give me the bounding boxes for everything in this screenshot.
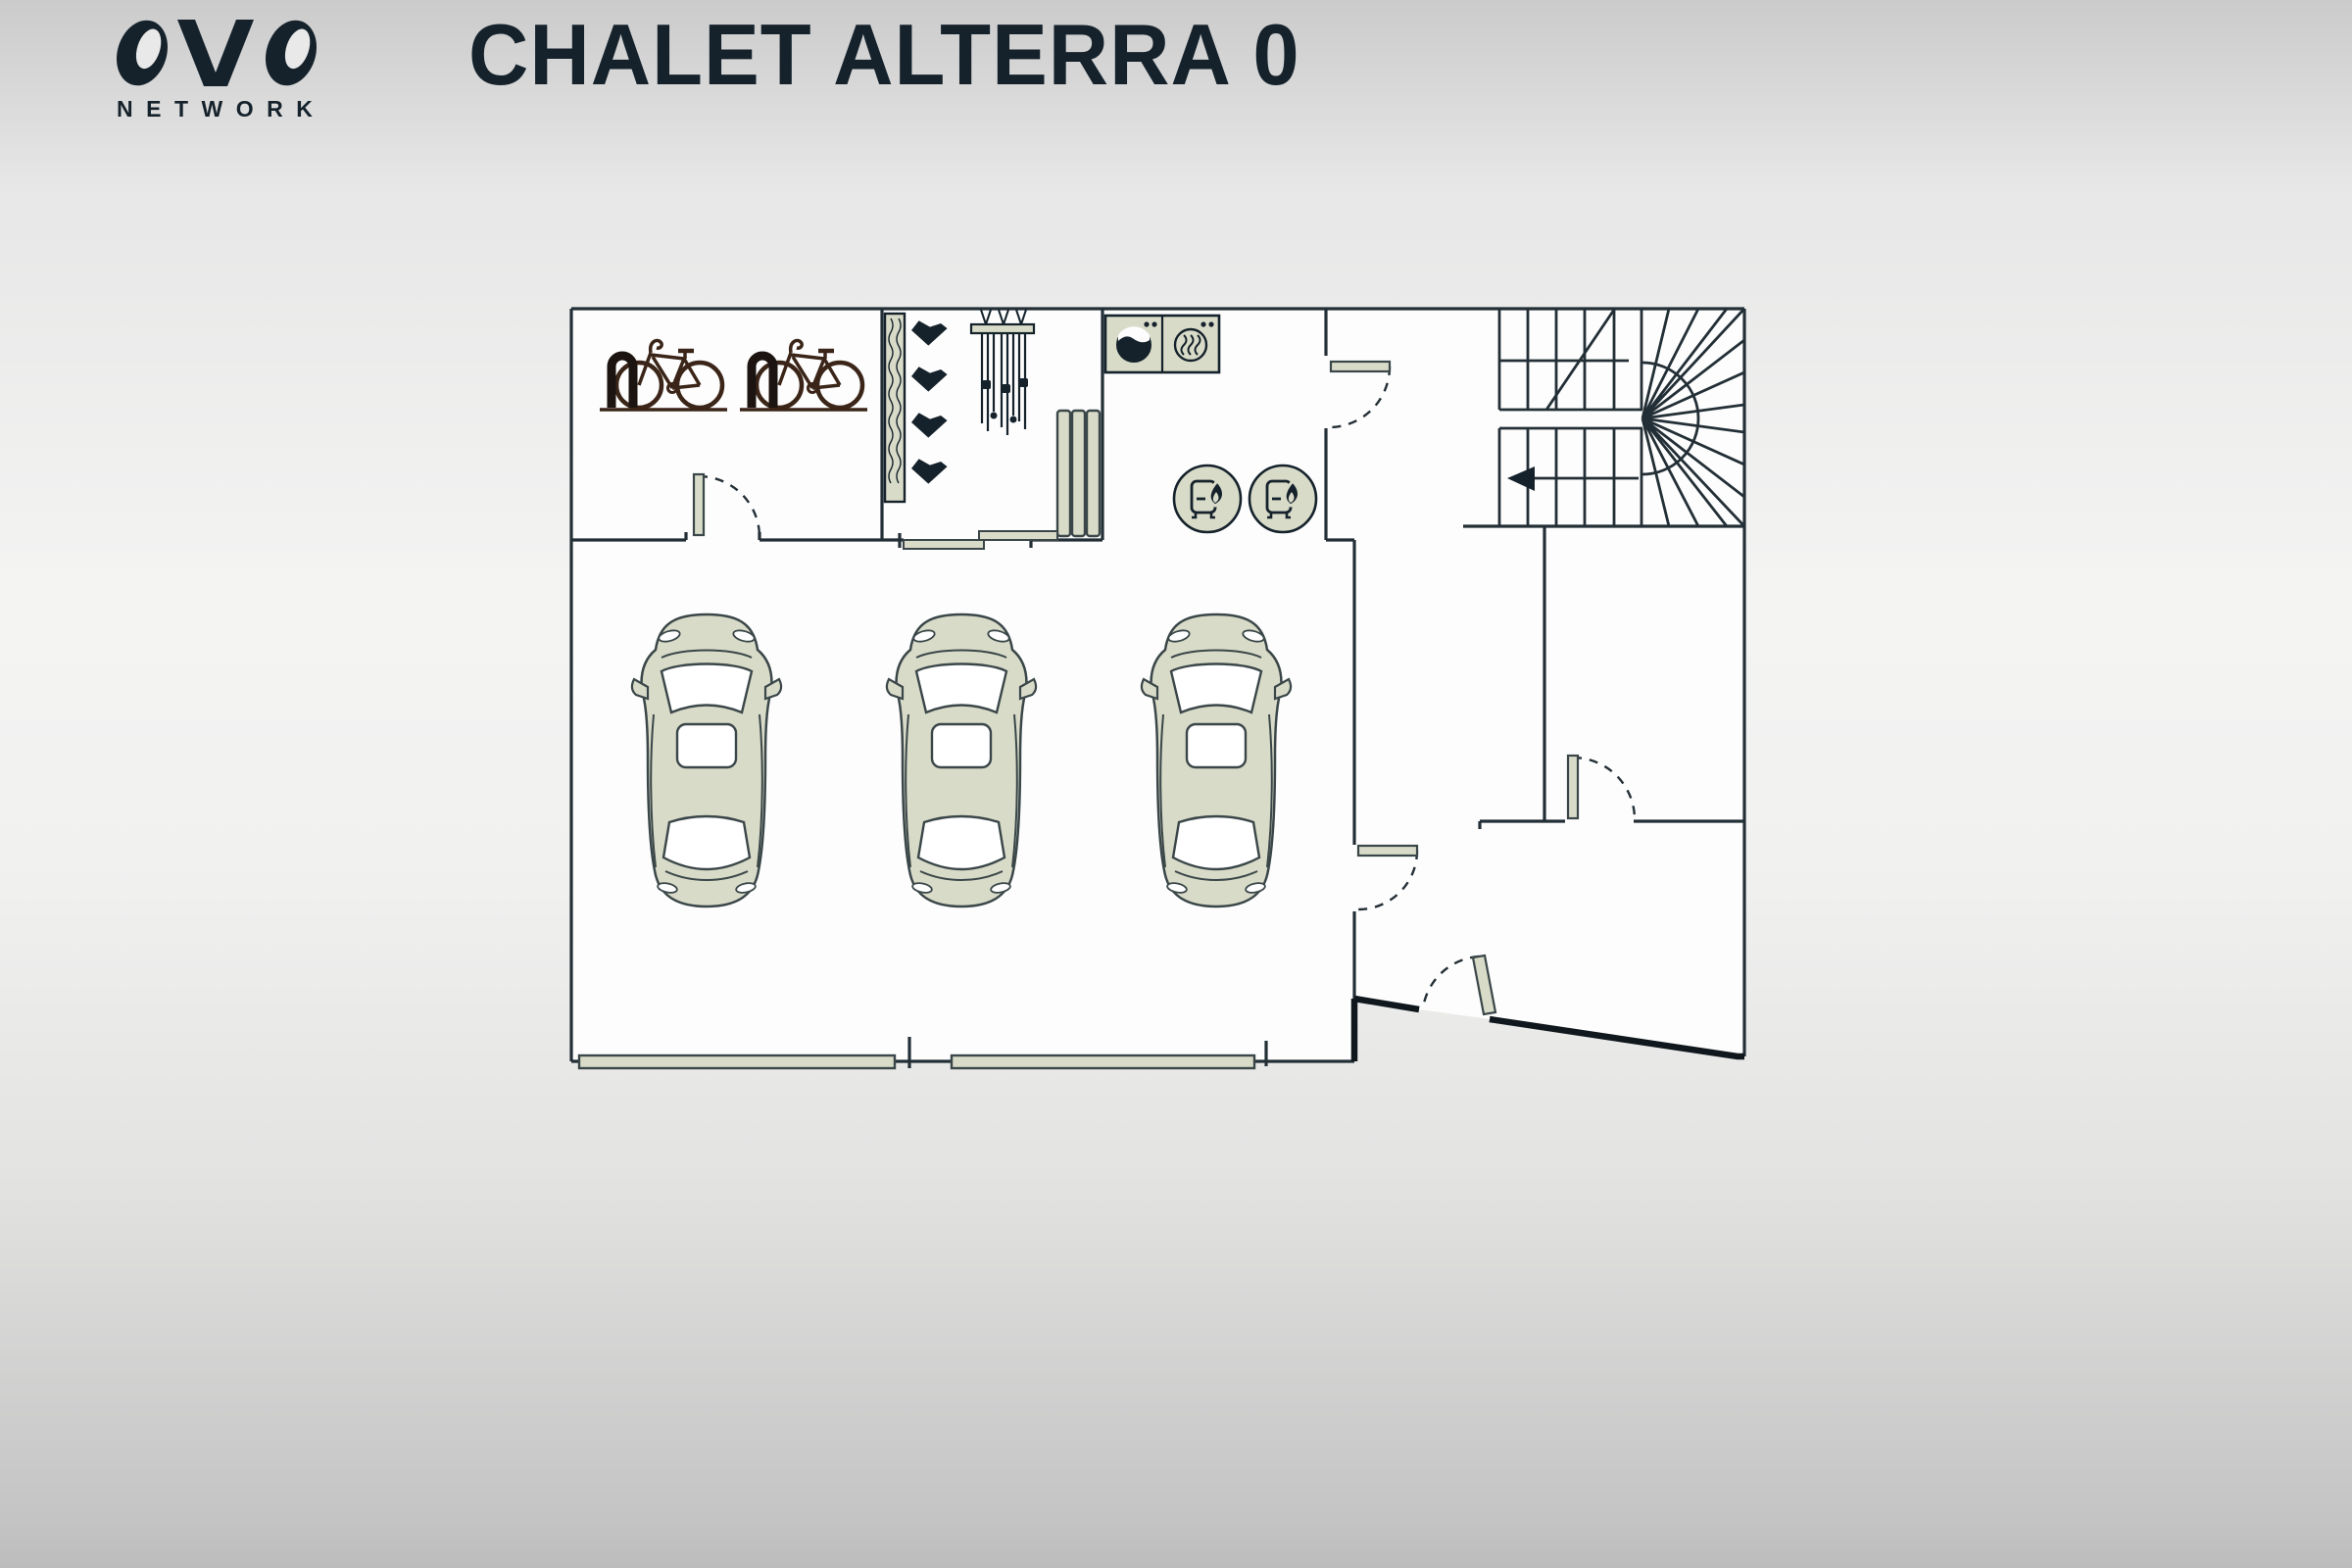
swing-door-icon <box>1331 362 1390 371</box>
ovo-logo-glyphs <box>113 12 323 90</box>
car-icon <box>1142 614 1291 906</box>
page-title: CHALET ALTERRA 0 <box>468 6 1300 106</box>
floor-plan <box>539 284 1774 1098</box>
garage-door-icon <box>952 1055 1254 1068</box>
car-icon <box>887 614 1036 906</box>
laundry-appliances <box>1105 316 1219 372</box>
ovo-logo-icon <box>113 12 348 90</box>
logo-network-label: NETWORK <box>113 96 348 122</box>
logo-v <box>177 20 254 86</box>
water-heater-icon <box>1249 465 1316 532</box>
page: { "header": { "logo_text": "OVO", "logo_… <box>0 0 2352 1568</box>
garage-door-icon <box>579 1055 895 1068</box>
swing-door-icon <box>1568 756 1578 818</box>
water-heater-icon <box>1174 465 1241 532</box>
swing-door-icon <box>1358 846 1417 856</box>
radiator-icon <box>1057 411 1100 536</box>
floor-plan-drawing <box>539 284 1774 1098</box>
logo-o-right <box>258 14 323 90</box>
swing-door-icon <box>694 474 704 535</box>
sliding-door-icon <box>904 540 984 549</box>
ovo-network-logo: NETWORK <box>113 12 348 122</box>
car-icon <box>632 614 781 906</box>
sliding-door-icon <box>979 531 1057 540</box>
logo-o-left <box>113 14 175 90</box>
